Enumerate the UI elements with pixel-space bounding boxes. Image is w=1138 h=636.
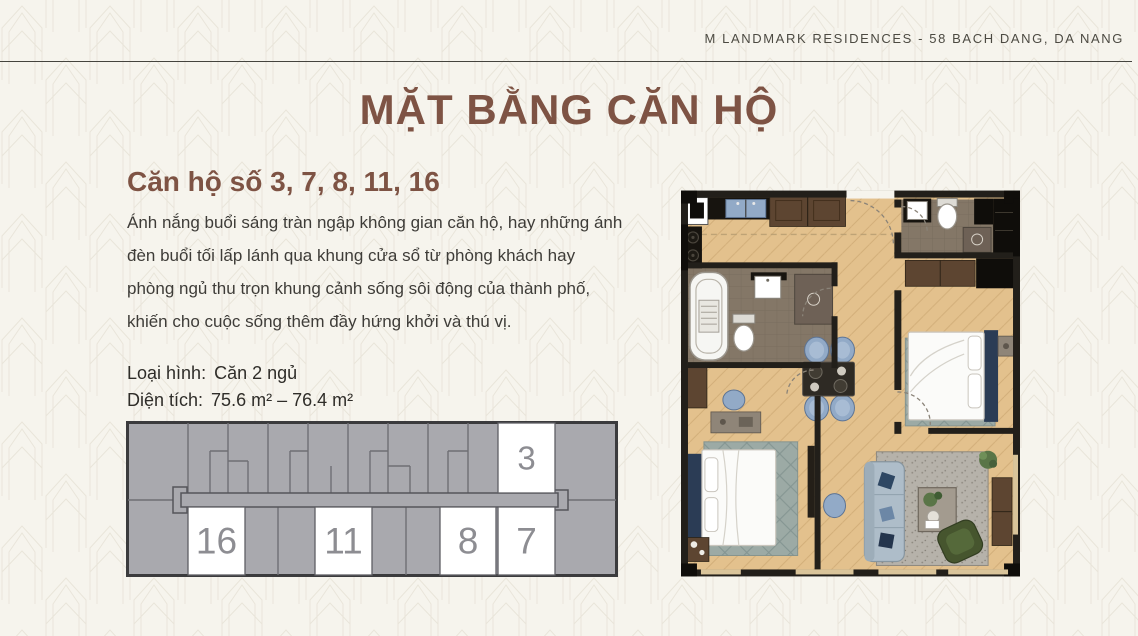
bed2-headboard bbox=[984, 330, 998, 422]
spec-label: Loại hình: bbox=[127, 363, 206, 383]
sofa-pillow bbox=[878, 532, 894, 548]
spec-label: Diện tích: bbox=[127, 390, 203, 410]
vanity-stool bbox=[723, 390, 745, 410]
section-description: Ánh nắng buổi sáng tràn ngập không gian … bbox=[127, 206, 624, 338]
bedroom1-vanity bbox=[711, 412, 761, 433]
spec-value: Căn 2 ngủ bbox=[214, 363, 297, 383]
spec-row-area: Diện tích:75.6 m² – 76.4 m² bbox=[127, 387, 353, 414]
dining-set bbox=[803, 337, 855, 421]
keyplan-unit-3-number: 3 bbox=[517, 440, 535, 477]
header-rule bbox=[0, 61, 1132, 62]
bathroom2-shower bbox=[963, 227, 991, 252]
spec-value: 75.6 m² – 76.4 m² bbox=[211, 390, 353, 410]
bedroom1-cabinet bbox=[687, 366, 707, 408]
keyplan-unit-7-number: 7 bbox=[516, 521, 537, 562]
bed1-nightstand bbox=[687, 538, 709, 562]
keyplan-unit-8-number: 8 bbox=[458, 521, 479, 562]
bathroom1-shower bbox=[795, 274, 833, 324]
hall-stool bbox=[824, 494, 846, 518]
bedroom2-closet bbox=[976, 258, 1016, 288]
tv-console bbox=[808, 446, 815, 518]
brand-header: M LANDMARK RESIDENCES - 58 BACH DANG, DA… bbox=[705, 31, 1124, 46]
wardrobe-top-right bbox=[993, 199, 1016, 255]
spec-row-type: Loại hình:Căn 2 ngủ bbox=[127, 360, 353, 387]
apartment-floorplan bbox=[681, 190, 1020, 577]
entry-opening bbox=[847, 191, 895, 199]
bathroom2-sink bbox=[907, 202, 927, 220]
bed1-headboard bbox=[688, 454, 702, 544]
floor-keyplan: 3 16 11 8 7 bbox=[126, 421, 618, 577]
page-title: MẶT BẰNG CĂN HỘ bbox=[0, 86, 1138, 134]
bathroom2-toilet bbox=[938, 204, 957, 229]
section-subtitle: Căn hộ số 3, 7, 8, 11, 16 bbox=[127, 166, 440, 198]
bathroom1-toilet bbox=[734, 325, 754, 351]
keyplan-unit-11-number: 11 bbox=[324, 521, 362, 562]
keyplan-unit-16-number: 16 bbox=[196, 521, 237, 562]
bathroom2-closet bbox=[974, 199, 993, 225]
spec-list: Loại hình:Căn 2 ngủ Diện tích:75.6 m² – … bbox=[127, 360, 353, 414]
